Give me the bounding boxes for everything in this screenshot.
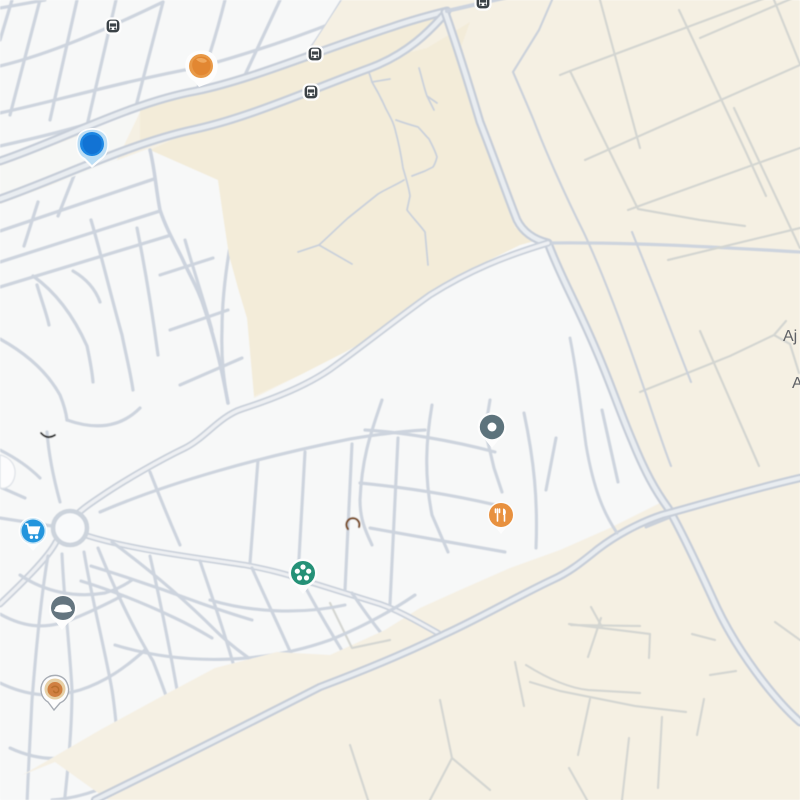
svg-text:A: A (792, 375, 800, 392)
svg-text:Aj: Aj (783, 328, 797, 345)
